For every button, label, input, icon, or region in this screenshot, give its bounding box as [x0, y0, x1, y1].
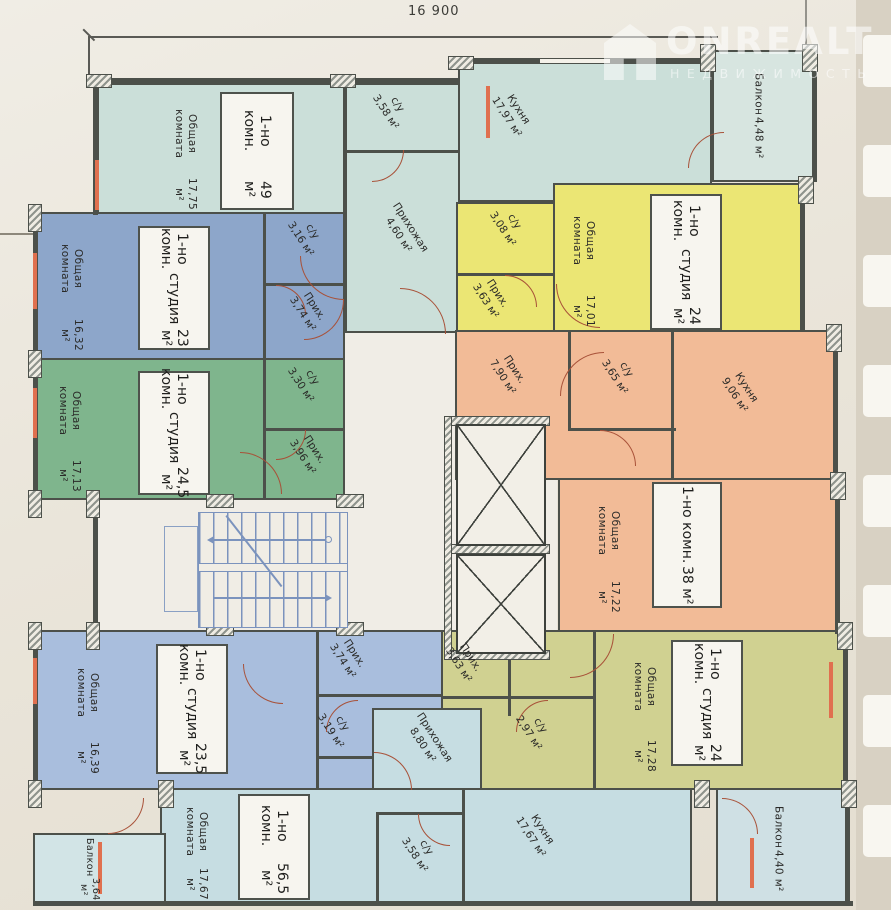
paper-tab: [863, 365, 891, 417]
room-area: 17,75 м²: [172, 174, 198, 215]
unit565-balcony-label: Балкон 3,64 м²: [68, 838, 110, 902]
unit24o-balcony-label: Балкон 4,40 м²: [756, 800, 800, 898]
unit49-living-label: Общая комната 17,75 м²: [160, 95, 210, 215]
window-mark: [829, 662, 833, 718]
wall-segment: [462, 788, 465, 905]
stair-arrowhead: [207, 536, 214, 544]
wall-pier: [86, 622, 100, 650]
stair-rail: [199, 563, 347, 572]
paper-tab: [863, 145, 891, 197]
unit-type: 1-но комн.: [679, 486, 695, 563]
outer-wall: [33, 628, 38, 792]
unit565-label-box: 1-но комн. 56,5 м²: [238, 794, 310, 900]
outer-wall: [833, 330, 838, 480]
wall-segment: [430, 696, 595, 699]
paper-tab: [863, 255, 891, 307]
room-name: Общая комната: [595, 488, 621, 574]
unit-area: 56,5 м²: [258, 858, 290, 898]
wall-pier: [826, 324, 842, 352]
wall-pier: [28, 780, 42, 808]
unit49-label-box: 1-но комн. 49 м²: [220, 92, 294, 210]
unit-subtype: студия: [184, 688, 200, 739]
room-area: 17,28 м²: [631, 733, 657, 780]
unit-type: 1-но комн.: [158, 368, 190, 409]
room-area: 16,32 м²: [58, 313, 84, 358]
wall-segment: [376, 812, 379, 905]
stair-break-line: [226, 515, 283, 587]
wall-pier: [28, 350, 42, 378]
wall-pier: [694, 780, 710, 808]
wall-pier: [28, 204, 42, 232]
window-mark: [95, 160, 99, 210]
outer-wall: [33, 901, 853, 906]
unit-area: 49 м²: [241, 171, 273, 208]
unit-subtype: студия: [678, 249, 694, 300]
unit-type: 1-но комн.: [691, 642, 723, 685]
stair-arrow-origin: [325, 536, 332, 543]
outer-wall: [835, 478, 840, 634]
elevator-shaft: [456, 424, 546, 546]
unit23-living-label: Общая комната 16,32 м²: [48, 226, 94, 358]
unit-area: 23 м²: [158, 327, 190, 348]
wall-segment: [316, 694, 443, 697]
room-area: 4,48 м²: [751, 117, 764, 159]
wall-pier: [837, 622, 853, 650]
room-area: 4,40 м²: [771, 850, 784, 892]
window-mark: [33, 658, 37, 704]
room-name: Балкон: [83, 838, 95, 877]
staircase: [198, 512, 348, 628]
unit-type: 1-но комн.: [241, 94, 273, 168]
wall-pier: [158, 780, 174, 808]
watermark: ONREALT НЕДВИЖИМОСТЬ: [596, 18, 891, 96]
unit-area: 38 м²: [679, 566, 695, 604]
window-mark: [33, 253, 37, 309]
top-dimension-label: 16 900: [408, 4, 460, 19]
room-name: Общая комната: [570, 195, 596, 286]
unit-type: 1-но комн.: [670, 196, 702, 246]
room-name: Балкон: [771, 806, 784, 848]
room-area: 3,64 м²: [77, 878, 101, 902]
unit24y-living-label: Общая комната 17,01 м²: [560, 195, 606, 335]
unit-subtype: студия: [699, 688, 715, 739]
room-area: 17,67 м²: [183, 866, 209, 902]
wall-pier: [330, 74, 356, 88]
outer-wall: [843, 628, 848, 790]
paper-tab: [863, 695, 891, 747]
unit-area: 24 м²: [670, 303, 702, 328]
watermark-subtitle: НЕДВИЖИМОСТЬ: [670, 66, 873, 81]
unit-type: 1-но комн.: [158, 228, 190, 270]
stair-arrowhead: [325, 594, 332, 602]
unit235-label-box: 1-но комн. студия 23,5 м²: [156, 644, 228, 774]
unit38-label-box: 1-но комн. 38 м²: [652, 482, 722, 608]
paper-tab: [863, 585, 891, 637]
unit245-living-label: Общая комната 17,13 м²: [46, 368, 92, 498]
unit-area: 23,5 м²: [176, 743, 208, 774]
window-mark: [750, 838, 754, 888]
wall-pier: [841, 780, 857, 808]
unit24o-living-label: Общая комната 17,28 м²: [622, 642, 666, 780]
unit24o-label-box: 1-но комн. студия 24 м²: [671, 640, 743, 766]
wall-pier: [28, 490, 42, 518]
unit-area: 24,5 м²: [158, 467, 190, 498]
paper-binding-strip: [856, 0, 891, 910]
watermark-brand: ONREALT: [666, 20, 875, 63]
wall-segment: [263, 212, 266, 360]
unit-type: 1-но комн.: [258, 796, 290, 855]
room-name: Общая комната: [56, 368, 82, 452]
unit38-living-label: Общая комната 17,22 м²: [586, 488, 630, 620]
wall-segment: [671, 330, 674, 480]
room-area: 17,13 м²: [56, 453, 82, 498]
wall-pier: [830, 472, 846, 500]
wall-pier: [798, 176, 814, 204]
unit245-label-box: 1-но комн. студия 24,5 м²: [138, 371, 210, 495]
wall-segment: [568, 428, 676, 431]
room-name: Общая комната: [58, 226, 84, 312]
door-arc: [108, 798, 144, 834]
room-area: 17,22 м²: [595, 575, 621, 620]
room-name: Общая комната: [183, 798, 209, 865]
room-name: Общая комната: [74, 650, 100, 734]
onrealt-logo-icon: [604, 24, 656, 80]
room-area: 16,39 м²: [74, 735, 100, 780]
elevator-wall: [444, 416, 452, 660]
unit24y-label-box: 1-но комн. студия 24 м²: [650, 194, 722, 330]
unit-type: 1-но комн.: [176, 644, 208, 685]
room-area: 17,01 м²: [570, 287, 596, 335]
unit235-living-label: Общая комната 16,39 м²: [64, 650, 110, 780]
wall-pier: [448, 56, 474, 70]
unit-subtype: студия: [166, 412, 182, 463]
wall-pier: [206, 494, 234, 508]
room-name: Общая комната: [172, 95, 198, 173]
paper-tab: [863, 805, 891, 857]
elevator-shaft: [456, 554, 546, 654]
outer-wall: [93, 498, 98, 634]
unit-area: 24 м²: [691, 743, 723, 764]
wall-pier: [86, 74, 112, 88]
outer-wall: [93, 78, 460, 83]
stair-landing: [164, 526, 198, 612]
unit23-label-box: 1-но комн. студия 23 м²: [138, 226, 210, 350]
window-mark: [33, 388, 37, 438]
unit565-living-label: Общая комната 17,67 м²: [174, 798, 218, 902]
wall-pier: [336, 494, 364, 508]
stair-arrow-lower: [213, 597, 325, 599]
room-name: Общая комната: [631, 642, 657, 732]
stair-arrow-upper: [213, 539, 325, 541]
unit-subtype: студия: [166, 273, 182, 324]
paper-tab: [863, 475, 891, 527]
wall-pier: [28, 622, 42, 650]
